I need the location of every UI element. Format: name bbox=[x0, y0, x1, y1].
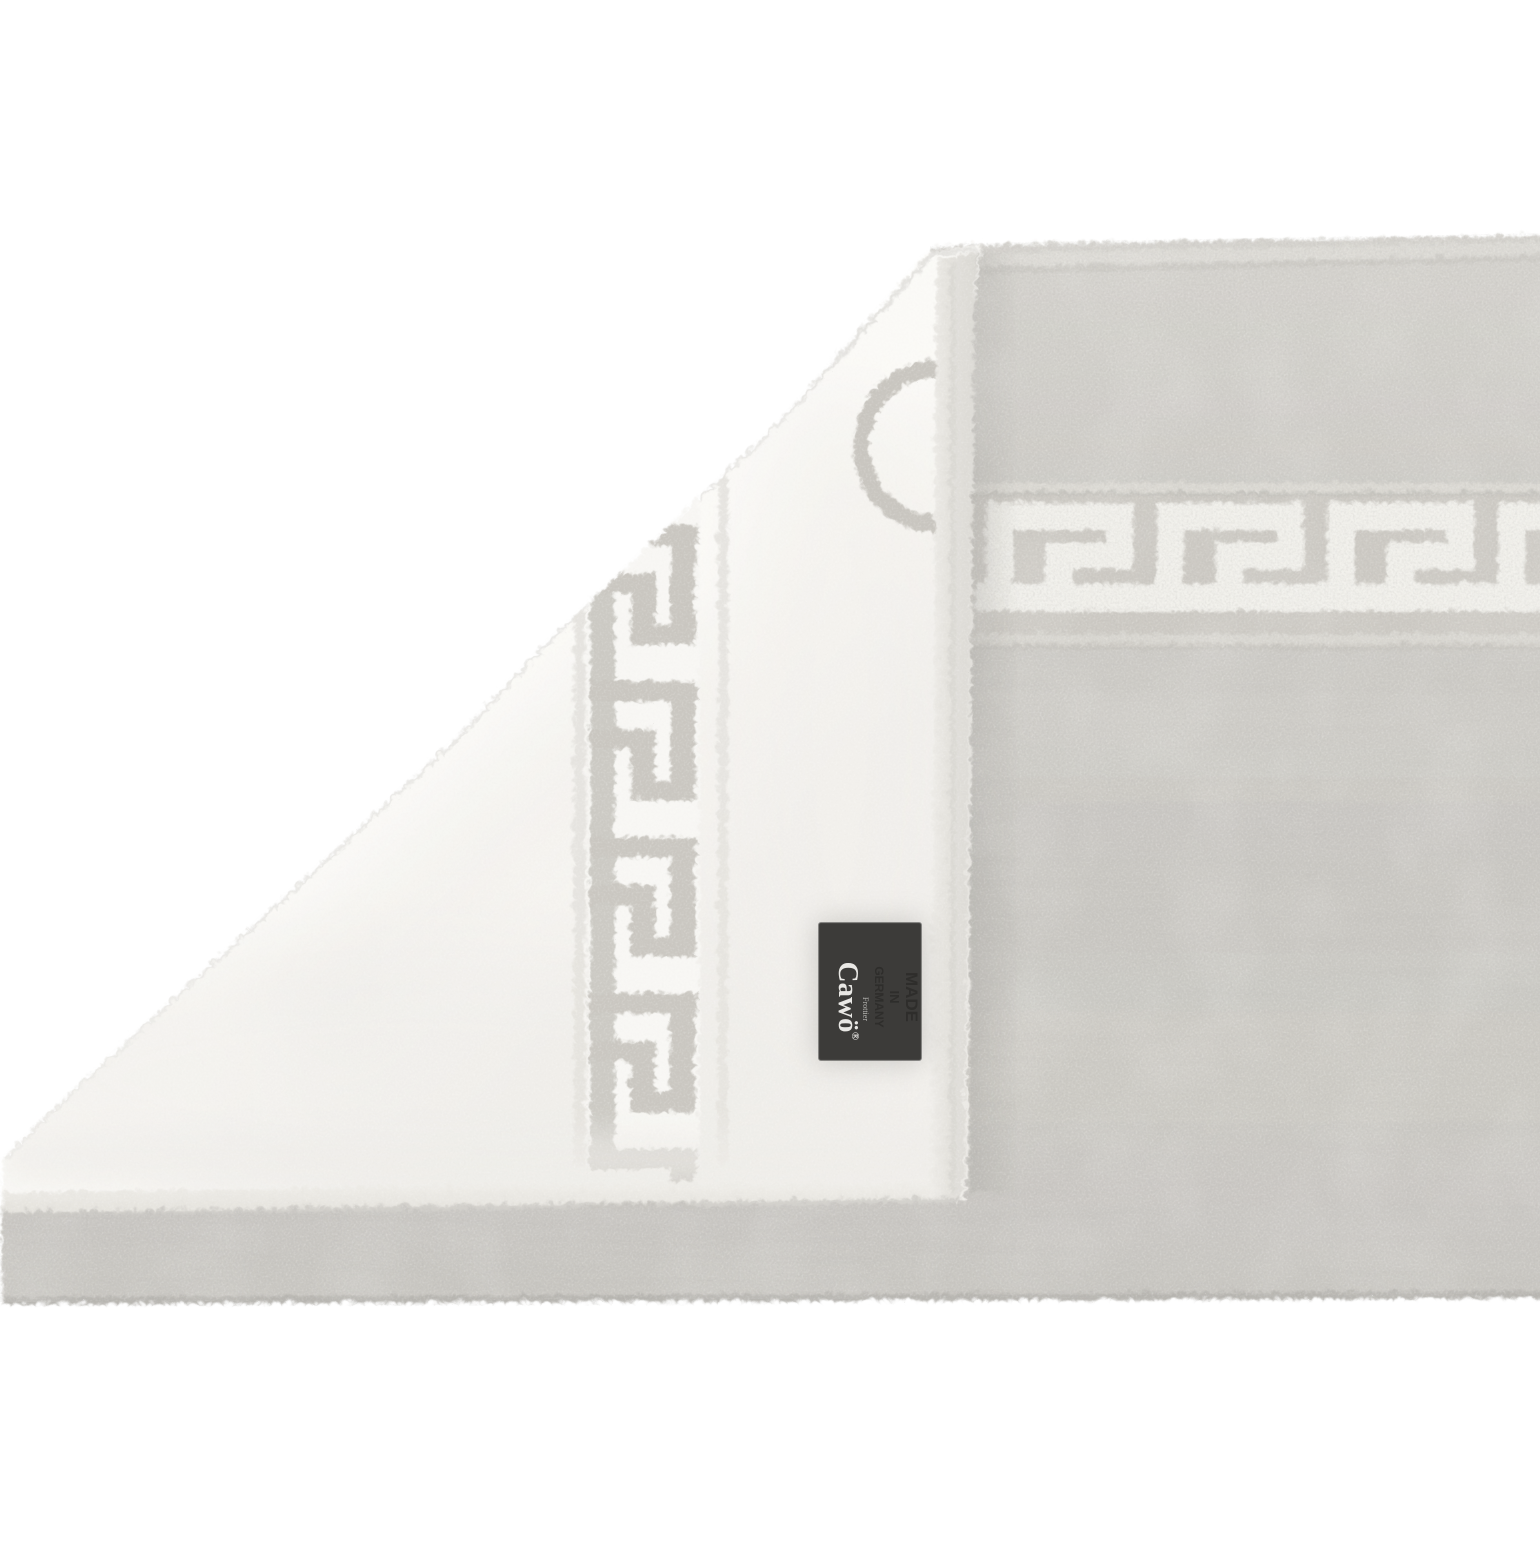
svg-text:Cawö: Cawö bbox=[832, 962, 864, 1033]
svg-text:®: ® bbox=[849, 1032, 861, 1040]
svg-text:MADE: MADE bbox=[902, 972, 921, 1022]
svg-text:IN: IN bbox=[887, 991, 902, 1004]
svg-text:GERMANY: GERMANY bbox=[872, 966, 886, 1027]
svg-text:Frottier: Frottier bbox=[861, 997, 870, 1021]
